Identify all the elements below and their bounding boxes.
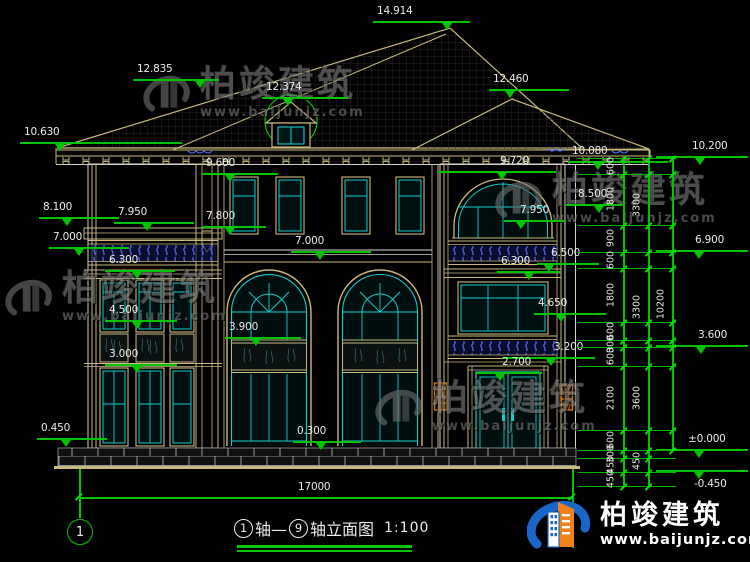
level-label: 3.000 [109, 349, 138, 360]
level-label: 4.650 [538, 298, 567, 309]
level-line [202, 173, 278, 175]
dim-value: 600 [606, 157, 617, 175]
dim-value: 450 [632, 452, 643, 470]
dim-value-total: 10200 [656, 289, 667, 319]
level-line [568, 161, 668, 163]
level-label: 6.500 [551, 248, 580, 259]
level-marker-icon [315, 253, 325, 260]
level-marker-icon [142, 224, 152, 231]
dim-extension [578, 322, 676, 323]
dim-extension [578, 366, 676, 367]
title-joiner: 轴— [255, 516, 287, 540]
level-marker-icon [283, 99, 293, 106]
level-label: 12.460 [493, 74, 529, 85]
level-line [293, 441, 361, 443]
brand-name: 柏竣建筑 [600, 502, 724, 530]
level-line [49, 247, 129, 249]
level-marker-icon [694, 451, 704, 458]
dim-extension [578, 174, 676, 175]
level-label: 7.950 [520, 205, 549, 216]
dim-extension [578, 430, 676, 431]
level-line [262, 97, 348, 99]
dim-value: 2100 [606, 386, 617, 410]
brand-logo: 柏竣建筑 www.baijunjz.com [527, 492, 750, 558]
level-marker-icon [696, 347, 706, 354]
dim-extension [578, 458, 676, 459]
level-label: 3.600 [698, 330, 727, 341]
level-label: 0.450 [41, 423, 70, 434]
title-suffix: 轴立面图 [310, 516, 374, 540]
level-marker-icon [74, 249, 84, 256]
axis-bubble-label: 1 [76, 525, 84, 540]
level-line [39, 217, 119, 219]
overall-dim-line [79, 497, 572, 499]
level-label: 2.700 [502, 357, 531, 368]
level-label: 14.914 [377, 6, 413, 17]
level-label: 7.000 [295, 236, 324, 247]
level-marker-icon [546, 359, 556, 366]
dim-chain-line [672, 158, 674, 450]
level-label: 10.200 [692, 141, 728, 152]
level-label: ±0.000 [688, 434, 726, 445]
dim-extension [578, 225, 676, 226]
level-marker-icon [61, 440, 71, 447]
title-underline [237, 545, 412, 548]
level-marker-icon [225, 175, 235, 182]
dim-value: 1800 [606, 283, 617, 307]
level-marker-icon [62, 219, 72, 226]
level-label: 4.500 [109, 305, 138, 316]
level-line [37, 438, 107, 440]
title-scale: 1:100 [384, 520, 429, 536]
dim-value: 600 [606, 251, 617, 269]
level-label: 10.080 [572, 146, 608, 157]
level-label: 7.000 [53, 232, 82, 243]
level-marker-icon [132, 322, 142, 329]
level-marker-icon [505, 91, 515, 98]
dim-extension [578, 450, 676, 451]
brand-logo-icon [527, 492, 593, 558]
level-line [534, 313, 606, 315]
title-axis-to: 9 [289, 519, 308, 538]
dim-value: 3300 [632, 193, 643, 217]
dim-extension [578, 486, 676, 487]
level-marker-icon [132, 272, 142, 279]
level-label: 3.900 [229, 322, 258, 333]
level-marker-icon [593, 163, 603, 170]
level-label: 9.720 [500, 156, 529, 167]
level-label: 12.835 [137, 64, 173, 75]
level-marker-icon [516, 222, 526, 229]
level-marker-icon [694, 252, 704, 259]
dim-value: 3600 [632, 386, 643, 410]
dim-extension [578, 472, 676, 473]
level-label: 7.950 [118, 207, 147, 218]
level-marker-icon [225, 228, 235, 235]
level-marker-icon [316, 443, 326, 450]
level-marker-icon [695, 158, 705, 165]
level-line [291, 251, 371, 253]
level-line [133, 79, 219, 81]
level-line [373, 21, 470, 23]
dim-extension [578, 268, 676, 269]
level-marker-icon [524, 273, 534, 280]
level-line [20, 142, 182, 144]
level-line [114, 222, 194, 224]
dim-value: 900 [606, 229, 617, 247]
dim-extension [578, 158, 676, 159]
dim-value: 3300 [632, 295, 643, 319]
level-marker-icon [694, 472, 704, 479]
level-line [225, 337, 301, 339]
level-label: 7.800 [206, 211, 235, 222]
level-label: 0.300 [297, 426, 326, 437]
level-line [476, 372, 542, 374]
cad-elevation-canvas: 14.91412.83512.37412.46010.63010.08010.2… [0, 0, 750, 562]
level-marker-icon [55, 144, 65, 151]
title-axis-from: 1 [234, 519, 253, 538]
dim-extension [578, 340, 676, 341]
level-label: 9.600 [206, 158, 235, 169]
dim-extension [578, 252, 676, 253]
level-label: 8.100 [43, 202, 72, 213]
overall-dim-text: 17000 [298, 482, 330, 493]
level-label: 8.500 [578, 189, 607, 200]
level-marker-icon [497, 173, 507, 180]
level-marker-icon [556, 315, 566, 322]
dim-value: 600 [606, 347, 617, 365]
dimension-layer: 14.91412.83512.37412.46010.63010.08010.2… [0, 0, 750, 562]
level-marker-icon [442, 23, 452, 30]
level-label: 12.374 [266, 82, 302, 93]
drawing-title: 1轴—9轴立面图1:100 [232, 516, 429, 540]
title-underline-2 [237, 550, 412, 552]
level-label: 6.900 [695, 235, 724, 246]
dim-extension [578, 347, 676, 348]
level-label: 6.300 [109, 255, 138, 266]
level-label: -0.450 [694, 479, 727, 490]
level-label: 6.300 [501, 256, 530, 267]
dim-value: 450 [606, 470, 617, 488]
level-marker-icon [495, 374, 505, 381]
level-marker-icon [594, 206, 604, 213]
level-label: 10.630 [24, 127, 60, 138]
axis-bubble-1: 1 [67, 519, 93, 545]
level-marker-icon [195, 81, 205, 88]
level-marker-icon [132, 366, 142, 373]
dim-value: 1800 [606, 187, 617, 211]
level-line [504, 220, 566, 222]
level-line [489, 89, 569, 91]
level-marker-icon [251, 339, 261, 346]
brand-url: www.baijunjz.com [600, 532, 750, 548]
